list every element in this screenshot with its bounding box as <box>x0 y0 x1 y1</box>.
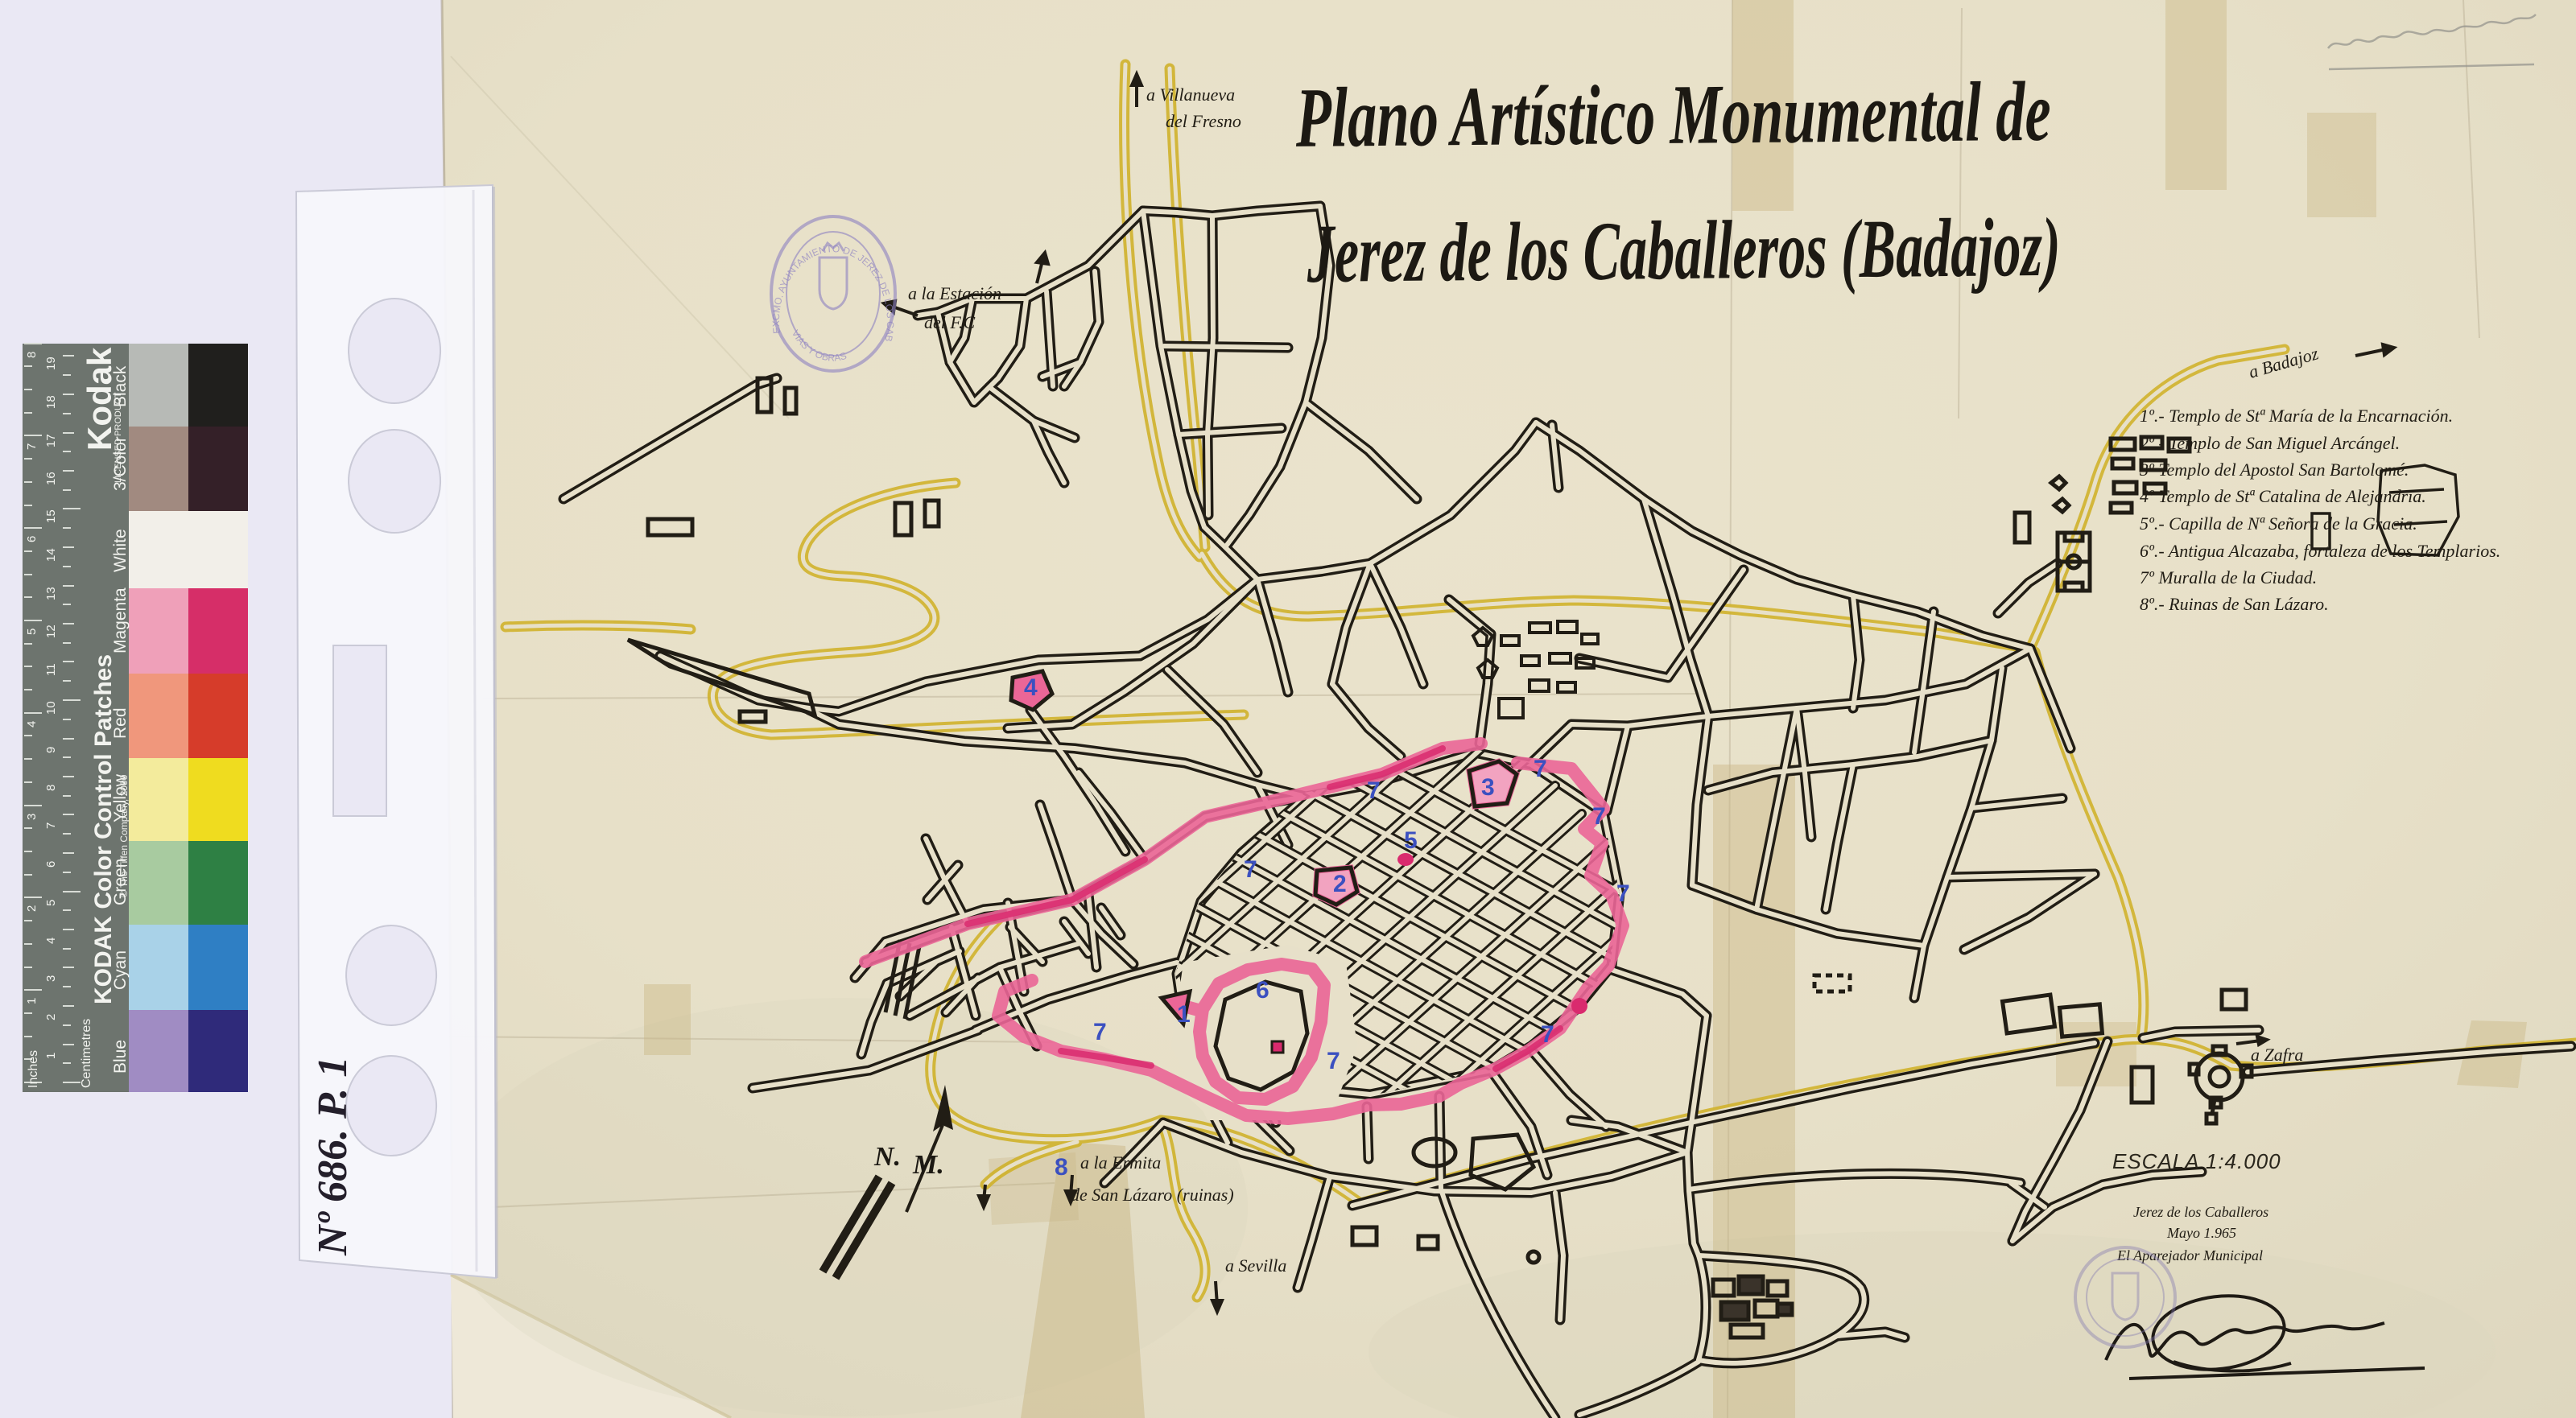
svg-text:17: 17 <box>44 434 58 447</box>
svg-text:3: 3 <box>25 814 39 820</box>
svg-text:8: 8 <box>25 352 39 358</box>
svg-text:10: 10 <box>44 701 58 715</box>
svg-text:White: White <box>111 529 130 572</box>
svg-text:6º.- Antigua Alcazaba, fortale: 6º.- Antigua Alcazaba, fortaleza de los … <box>2140 541 2500 561</box>
svg-text:11: 11 <box>44 663 58 676</box>
svg-text:5: 5 <box>44 900 58 906</box>
svg-text:3º Templo del Apostol San Bar: 3º Templo del Apostol San Bartolomé. <box>2139 460 2409 480</box>
svg-text:1: 1 <box>25 998 39 1004</box>
svg-text:a Zafra: a Zafra <box>2251 1045 2303 1065</box>
svg-text:7: 7 <box>1093 1019 1107 1045</box>
svg-text:6: 6 <box>25 536 39 542</box>
svg-text:4: 4 <box>25 721 39 728</box>
svg-text:7: 7 <box>1541 1021 1554 1048</box>
svg-text:7: 7 <box>44 822 58 829</box>
svg-text:7: 7 <box>1367 777 1381 804</box>
svg-text:2º.- Templo de San Miguel Arcá: 2º.- Templo de San Miguel Arcángel. <box>2140 433 2400 453</box>
svg-text:de San Lázaro (ruinas): de San Lázaro (ruinas) <box>1071 1185 1234 1205</box>
svg-text:8º.- Ruinas de San Lázaro.: 8º.- Ruinas de San Lázaro. <box>2140 594 2329 614</box>
svg-text:del F.C: del F.C <box>924 312 975 332</box>
svg-text:Centimetres: Centimetres <box>80 1019 93 1088</box>
svg-text:ESCALA 1:4.000: ESCALA 1:4.000 <box>2112 1149 2281 1173</box>
svg-text:Blue: Blue <box>111 1040 130 1074</box>
svg-text:Inches: Inches <box>27 1050 40 1088</box>
svg-text:a la Ermita: a la Ermita <box>1080 1152 1161 1173</box>
svg-text:Magenta: Magenta <box>111 587 130 653</box>
svg-text:1: 1 <box>1177 1001 1191 1028</box>
svg-text:5: 5 <box>1404 827 1418 854</box>
svg-text:18: 18 <box>44 395 58 409</box>
svg-text:Green: Green <box>111 859 130 905</box>
svg-text:Nº 686. P. 1: Nº 686. P. 1 <box>310 1057 356 1256</box>
svg-text:7: 7 <box>1534 756 1547 782</box>
svg-text:M.: M. <box>912 1150 944 1180</box>
svg-text:Jerez de los Caballeros (Badaj: Jerez de los Caballeros (Badajoz) <box>1307 201 2062 300</box>
svg-text:7: 7 <box>1327 1048 1340 1074</box>
svg-text:7: 7 <box>1592 803 1606 830</box>
svg-text:16: 16 <box>44 472 58 485</box>
svg-text:6: 6 <box>1256 977 1269 1004</box>
svg-text:4: 4 <box>44 938 58 944</box>
svg-text:Yellow: Yellow <box>111 773 130 822</box>
svg-text:a Villanueva: a Villanueva <box>1146 85 1235 105</box>
svg-text:2: 2 <box>44 1014 58 1020</box>
svg-text:Red: Red <box>111 707 130 739</box>
svg-text:N.: N. <box>873 1142 901 1172</box>
svg-text:15: 15 <box>44 509 58 523</box>
svg-text:3: 3 <box>44 975 58 982</box>
svg-text:13: 13 <box>44 587 58 600</box>
svg-text:a la Estación: a la Estación <box>908 283 1001 303</box>
svg-text:8: 8 <box>44 785 58 791</box>
svg-text:14: 14 <box>44 548 58 562</box>
svg-text:Mayo 1.965: Mayo 1.965 <box>2166 1225 2236 1241</box>
svg-text:Cyan: Cyan <box>111 950 130 990</box>
svg-text:6: 6 <box>44 861 58 868</box>
svg-text:Jerez de los Caballeros: Jerez de los Caballeros <box>2133 1204 2268 1220</box>
svg-text:3: 3 <box>1481 774 1495 801</box>
svg-text:Black: Black <box>111 365 130 407</box>
svg-text:7: 7 <box>1244 856 1257 883</box>
svg-text:8: 8 <box>1055 1154 1068 1181</box>
svg-text:Plano Artístico Monumental de: Plano Artístico Monumental de <box>1294 64 2051 165</box>
svg-text:4: 4 <box>1024 674 1038 701</box>
svg-text:7: 7 <box>25 443 39 450</box>
svg-text:7: 7 <box>1616 880 1630 907</box>
svg-text:1º.- Templo de Stª María de la: 1º.- Templo de Stª María de la Encarnaci… <box>2140 406 2453 426</box>
svg-text:7º Muralla de la Ciudad.: 7º Muralla de la Ciudad. <box>2140 567 2317 587</box>
svg-text:a Sevilla: a Sevilla <box>1225 1255 1286 1276</box>
svg-text:2: 2 <box>25 905 39 912</box>
svg-text:5º.- Capilla de Nª Señora de l: 5º.- Capilla de Nª Señora de la Gracia. <box>2140 513 2417 534</box>
svg-text:3/Color: 3/Color <box>111 436 130 491</box>
svg-text:5: 5 <box>25 629 39 635</box>
svg-text:4º Templo de Stª Catalina de: 4º Templo de Stª Catalina de Alejandria. <box>2140 486 2426 506</box>
svg-text:19: 19 <box>44 357 58 370</box>
svg-text:1: 1 <box>44 1053 58 1059</box>
svg-text:2: 2 <box>1333 871 1347 897</box>
svg-text:del Fresno: del Fresno <box>1166 111 1241 131</box>
svg-text:9: 9 <box>44 747 58 753</box>
svg-text:12: 12 <box>44 624 58 638</box>
